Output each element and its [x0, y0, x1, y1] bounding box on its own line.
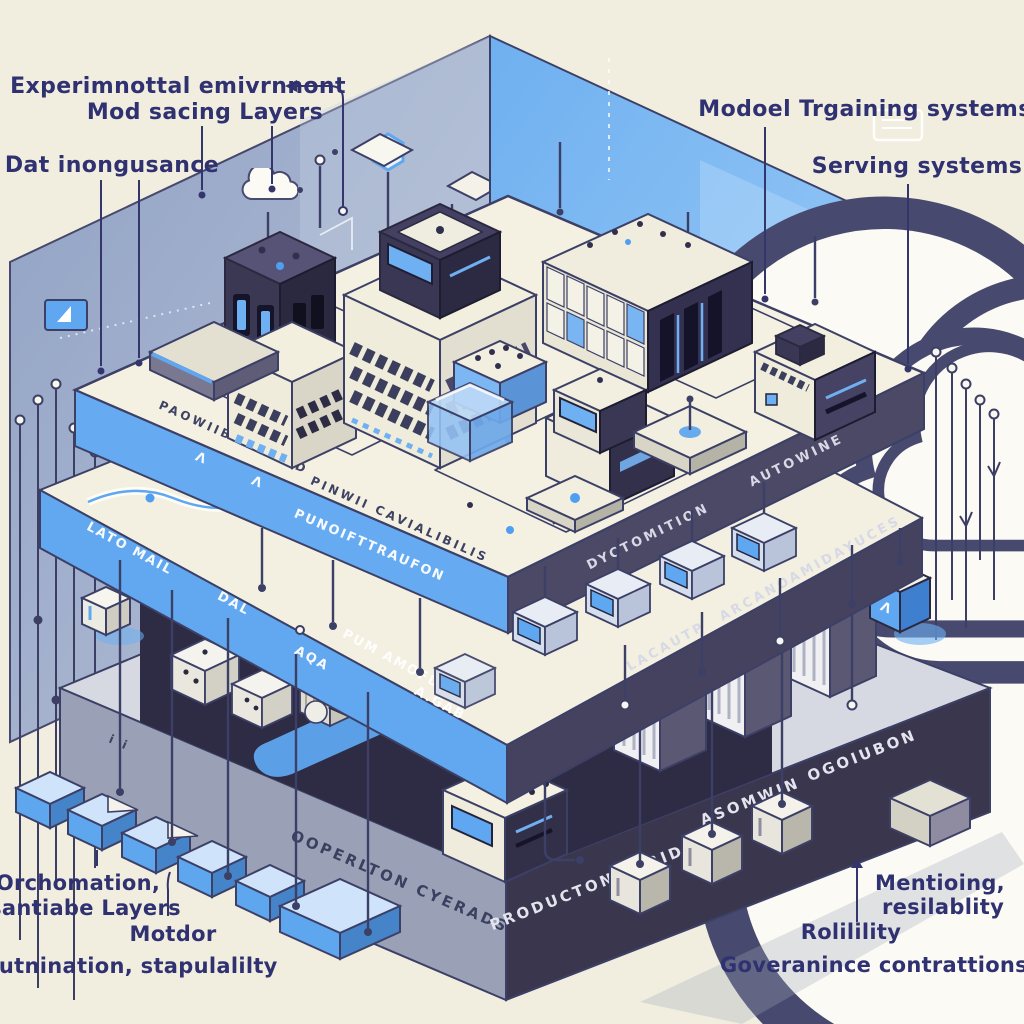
- rack-slit: [684, 302, 698, 371]
- leader-dot: [762, 296, 769, 303]
- node-dot: [685, 242, 691, 248]
- node-ring: [296, 626, 304, 634]
- isometric-scene: OOPERLTON CYERADS i i OGOIUBON ASOMWIN P…: [0, 0, 1024, 1024]
- node-ring: [34, 396, 43, 405]
- callout-monitoring-line2: resilablity: [882, 895, 1004, 919]
- wire-dot: [848, 600, 856, 608]
- node-dot: [297, 187, 303, 193]
- wire-dot: [416, 668, 424, 676]
- callout-model-training: Modoel Trgaining systems: [698, 97, 1024, 122]
- node-dot: [259, 247, 266, 254]
- wire-dot: [168, 838, 176, 846]
- node-ring: [976, 396, 985, 405]
- node-dot: [612, 229, 618, 235]
- callout-automation: Autnination, stapulalilty: [0, 954, 278, 978]
- node-dot: [495, 363, 501, 369]
- wire-ring: [776, 637, 785, 646]
- node-ring: [316, 156, 325, 165]
- node-ring: [990, 410, 999, 419]
- wire-dot: [778, 800, 786, 808]
- callout-motdor: Motdor: [130, 922, 217, 946]
- node-dot: [475, 355, 481, 361]
- node-dot: [637, 221, 643, 227]
- node-ring: [962, 380, 971, 389]
- leader-dot: [269, 186, 276, 193]
- callout-serving-systems: Serving systems: [812, 154, 1023, 179]
- node-dot: [489, 349, 495, 355]
- die-dot: [254, 706, 259, 711]
- wire-dot: [636, 860, 644, 868]
- callout-mod-layers: Mod sacing Layers: [87, 100, 323, 125]
- node-dot: [276, 262, 284, 270]
- wire-dot: [329, 622, 337, 630]
- leader-dot: [136, 360, 143, 367]
- callout-experimental-environment: Experimnottal emivrnnont: [10, 74, 346, 99]
- node-dot: [293, 253, 300, 260]
- callout-reliability: Rolilility: [801, 920, 902, 944]
- illustration-canvas: OOPERLTON CYERADS i i OGOIUBON ASOMWIN P…: [0, 0, 1024, 1024]
- wire-dot: [364, 928, 372, 936]
- blue-square: [766, 394, 777, 405]
- wire-dot: [258, 584, 266, 592]
- callout-monitoring-line1: Mentioing,: [875, 871, 1005, 895]
- wire-dot: [292, 902, 300, 910]
- wire-ring: [621, 701, 630, 710]
- node-dot: [570, 493, 580, 503]
- node-dot: [53, 697, 60, 704]
- node-dot: [625, 239, 631, 245]
- die-dot: [183, 669, 188, 674]
- node-dot: [557, 209, 564, 216]
- node-dot: [503, 345, 509, 351]
- node-dot: [687, 396, 694, 403]
- node-ring: [52, 380, 61, 389]
- wire-ring: [848, 701, 857, 710]
- wire-dot: [698, 668, 706, 676]
- wire-dot: [116, 788, 124, 796]
- leader-dot: [339, 207, 347, 215]
- node-dot: [597, 377, 603, 383]
- callout-orchestration-line2: santiabe Layers: [0, 896, 181, 920]
- node-dot: [436, 226, 444, 234]
- rack-slit: [660, 313, 674, 382]
- leader-dot: [98, 368, 105, 375]
- node-dot: [332, 149, 338, 155]
- node-dot: [146, 494, 155, 503]
- leader-dot: [905, 366, 912, 373]
- callout-orchestration-line1: Orchomation,: [0, 871, 160, 895]
- node-ring: [932, 348, 941, 357]
- server-slit: [311, 295, 324, 329]
- node-dot: [587, 242, 593, 248]
- callout-data-ingestion: Dat inongusance: [5, 153, 219, 178]
- node-dot: [812, 299, 819, 306]
- leader-dot: [199, 192, 206, 199]
- node-ring: [16, 416, 25, 425]
- wire-dot: [897, 559, 904, 566]
- node-dot: [517, 353, 523, 359]
- dome: [305, 701, 327, 723]
- node-dot: [35, 617, 42, 624]
- wire-dot: [224, 872, 232, 880]
- wire-dot: [708, 830, 716, 838]
- rack-slit: [708, 290, 722, 359]
- node-dot: [660, 231, 666, 237]
- node-ring: [948, 364, 957, 373]
- die-dot: [193, 678, 198, 683]
- die-dot: [245, 698, 250, 703]
- node-dot: [506, 526, 514, 534]
- wire-dot: [576, 856, 584, 864]
- die-dot: [202, 649, 207, 654]
- callout-governance: Goveranince contrattions: [720, 953, 1024, 977]
- node-dot: [467, 502, 473, 508]
